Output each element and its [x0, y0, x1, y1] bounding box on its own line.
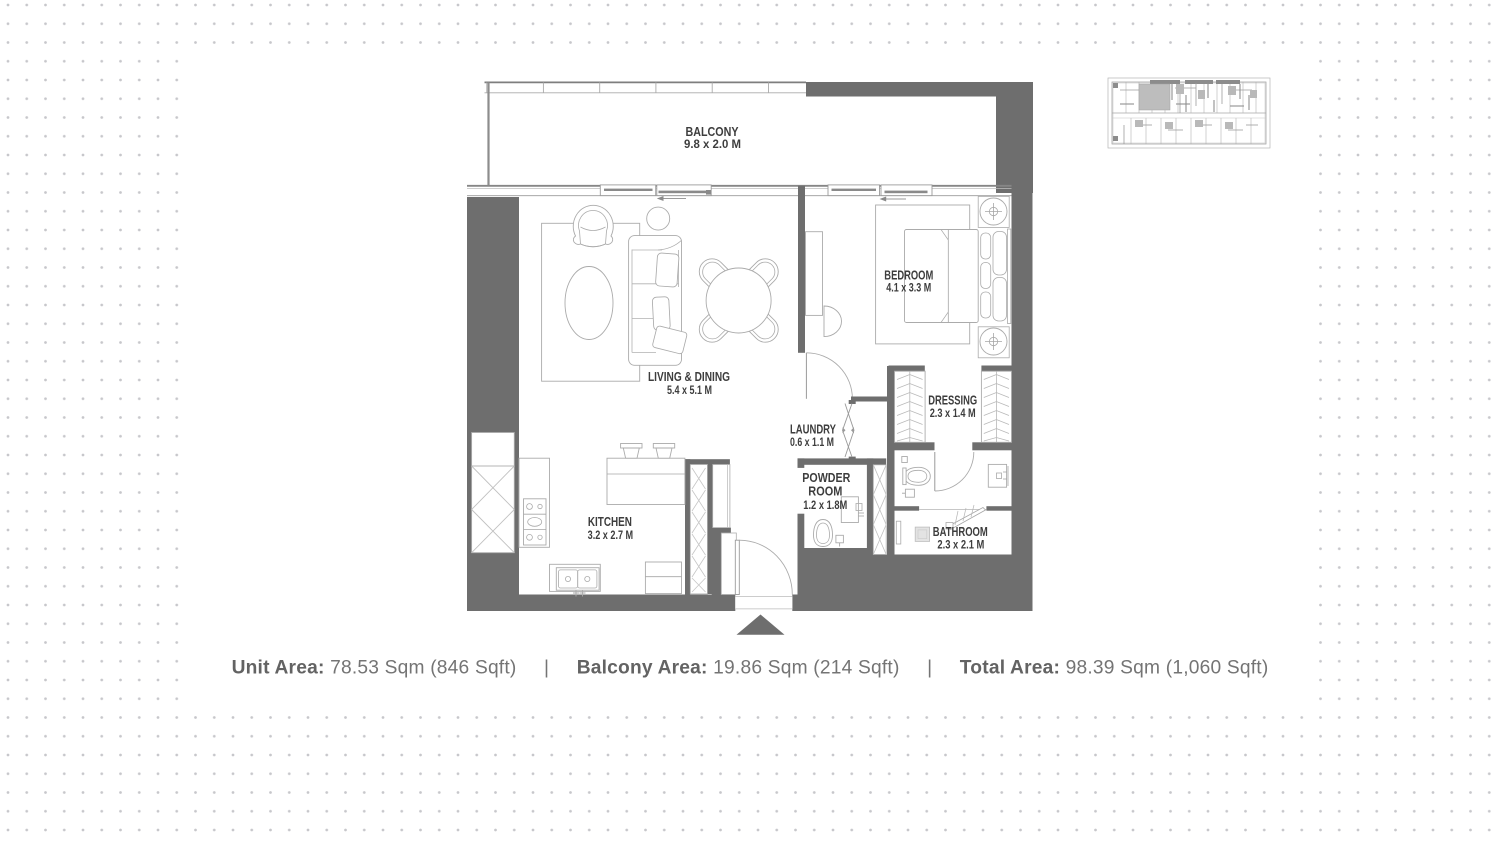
- svg-text:0.6 x 1.1 M: 0.6 x 1.1 M: [790, 435, 834, 449]
- svg-text:Unit Area: 78.53 Sqm (846 Sqft: Unit Area: 78.53 Sqm (846 Sqft) | Balcon…: [232, 658, 1269, 679]
- svg-text:1.2 x 1.8M: 1.2 x 1.8M: [803, 498, 847, 512]
- svg-text:3.2 x 2.7 M: 3.2 x 2.7 M: [588, 528, 634, 542]
- svg-text:ROOM: ROOM: [808, 483, 842, 498]
- svg-text:9.8 x 2.0 M: 9.8 x 2.0 M: [684, 137, 741, 151]
- svg-text:LIVING & DINING: LIVING & DINING: [648, 369, 730, 384]
- svg-text:KITCHEN: KITCHEN: [588, 514, 632, 529]
- svg-text:2.3 x 1.4 M: 2.3 x 1.4 M: [930, 406, 976, 420]
- svg-text:2.3 x 2.1 M: 2.3 x 2.1 M: [937, 538, 984, 552]
- svg-text:4.1 x 3.3 M: 4.1 x 3.3 M: [886, 281, 931, 295]
- svg-text:5.4 x 5.1 M: 5.4 x 5.1 M: [667, 383, 712, 397]
